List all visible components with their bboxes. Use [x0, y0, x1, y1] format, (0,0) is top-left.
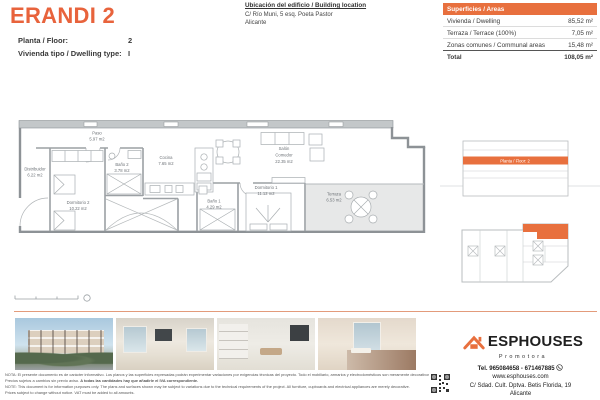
- room-label-banio1: Baño 1: [207, 199, 221, 204]
- room-area-terraza: 6.53 m2: [326, 198, 342, 203]
- brand-logo: ESPHOUSES: [448, 333, 598, 350]
- dwelling-type-value: I: [128, 49, 130, 58]
- room-area-banio2: 3.78 m2: [114, 168, 130, 173]
- photo-tv: [155, 329, 172, 340]
- contact-block: Tel. 965084658 - 671467885 www.esphouses…: [443, 364, 598, 398]
- room-area-cocina: 7.65 m2: [158, 161, 174, 166]
- scale-bar: [15, 295, 90, 301]
- photo-living-room: [116, 318, 214, 370]
- brochure-page: ERANDI 2 Planta / Floor: 2 Vivienda tipo…: [0, 0, 600, 400]
- building-location-city: Alicante: [245, 19, 366, 27]
- room-area-banio1: 4.29 m2: [206, 205, 222, 210]
- disclaimer-es-line2b: A todas las cantidades hay que añadirle …: [80, 378, 198, 383]
- room-area-distribuidor: 6.22 m2: [27, 173, 43, 178]
- disclaimer-en-line2: Prices subject to change without notice.…: [5, 390, 429, 396]
- page-title: ERANDI 2: [10, 3, 115, 29]
- total-label: Total: [447, 54, 462, 61]
- building-location-block: Ubicación del edificio / Building locati…: [245, 2, 366, 27]
- house-icon: [463, 333, 485, 350]
- room-area-dormitorio1: 11.12 m2: [257, 191, 275, 196]
- room-label-cocina: Cocina: [159, 155, 173, 160]
- room-area-paso: 5.97 m2: [89, 137, 105, 142]
- compass-icon: [84, 295, 90, 301]
- room-label-dormitorio1: Dormitorio 1: [255, 185, 278, 190]
- orange-divider: [14, 311, 597, 312]
- row-value: 15,48 m²: [568, 42, 593, 49]
- table-row: Zonas comunes / Communal areas 15,48 m²: [443, 39, 597, 50]
- photo-window: [186, 328, 208, 352]
- photo-kitchen: [217, 318, 315, 370]
- row-value: 7,05 m²: [572, 30, 593, 37]
- brand-tagline: Promotora: [448, 354, 598, 360]
- whatsapp-icon: [556, 364, 563, 371]
- room-label-terraza: Terraza: [327, 192, 342, 197]
- brand-name: ESPHOUSES: [488, 333, 583, 350]
- room-area-dormitorio2: 10.22 m2: [69, 206, 87, 211]
- room-label-banio2: Baño 2: [115, 162, 129, 167]
- disclaimer-es-line2a: Precios sujetos a cambios sin previo avi…: [5, 378, 80, 383]
- areas-table-header: Superficies / Areas: [443, 3, 597, 15]
- photo-bedroom: [318, 318, 416, 370]
- room-label-dormitorio2: Dormitorio 2: [67, 200, 90, 205]
- photo-tv: [290, 325, 310, 341]
- floor-label: Planta / Floor:: [18, 36, 68, 45]
- row-label: Terraza / Terrace (100%): [447, 30, 516, 37]
- highlighted-floor-label: Planta / Floor: 2: [500, 159, 530, 164]
- table-row: Vivienda / Dwelling 85,52 m²: [443, 15, 597, 27]
- room-label-paso: Paso: [92, 131, 102, 136]
- photo-window: [123, 326, 148, 353]
- building-location-address: C/ Río Muni, 5 esq. Poeta Pastor: [245, 11, 366, 19]
- row-label: Vivienda / Dwelling: [447, 18, 500, 25]
- patio-void: [106, 199, 177, 230]
- site-key-plan: [440, 210, 600, 300]
- table-row-total: Total 108,05 m²: [443, 50, 597, 62]
- qr-code: [431, 374, 450, 393]
- website-link: www.esphouses.com: [443, 373, 598, 381]
- floor-plan-drawing: Paso 5.97 m2 Distribuidor 6.22 m2 Baño 2…: [0, 95, 440, 310]
- floor-value: 2: [128, 36, 132, 45]
- photo-table: [260, 348, 282, 355]
- row-label: Zonas comunes / Communal areas: [447, 42, 545, 49]
- room-label-salon: Salón: [279, 146, 290, 151]
- areas-table: Superficies / Areas Vivienda / Dwelling …: [443, 3, 597, 62]
- room-label-salon2: Comedor: [275, 153, 293, 158]
- total-value: 108,05 m²: [564, 54, 593, 61]
- dwelling-type-label: Vivienda tipo / Dwelling type:: [18, 49, 122, 58]
- photo-building-exterior: [15, 318, 113, 370]
- room-label-distribuidor: Distribuidor: [24, 167, 46, 172]
- office-city: Alicante: [443, 390, 598, 398]
- building-section-diagram: Planta / Floor: 2: [440, 130, 600, 208]
- photo-cabinets: [219, 324, 248, 358]
- table-row: Terraza / Terrace (100%) 7,05 m²: [443, 27, 597, 39]
- legal-disclaimer: NOTA: El presente documento es de caráct…: [5, 372, 429, 396]
- photo-trees: [15, 351, 113, 367]
- room-area-salon: 22.35 m2: [275, 159, 293, 164]
- office-address: C/ Sdad. Cult. Dptva. Betis Florida, 19: [443, 382, 598, 390]
- phone-numbers: Tel. 965084658 - 671467885: [478, 366, 555, 372]
- phone-line: Tel. 965084658 - 671467885: [443, 364, 598, 373]
- photo-bed: [347, 350, 416, 370]
- building-location-heading: Ubicación del edificio / Building locati…: [245, 2, 366, 10]
- row-value: 85,52 m²: [568, 18, 593, 25]
- photo-pillow: [351, 348, 371, 353]
